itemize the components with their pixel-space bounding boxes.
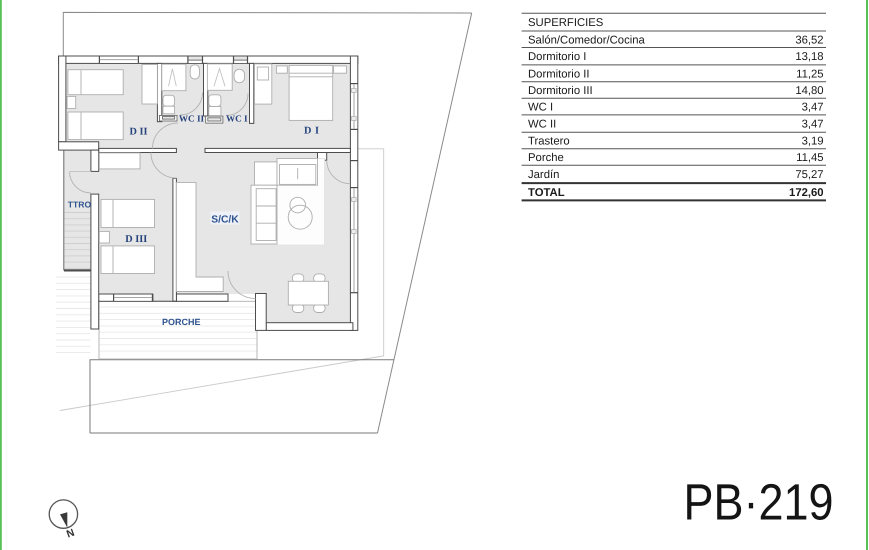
svg-text:Salón/Comedor/Cocina: Salón/Comedor/Cocina [528, 34, 646, 46]
svg-text:3,47: 3,47 [802, 102, 824, 114]
svg-text:13,18: 13,18 [795, 51, 823, 63]
svg-text:75,27: 75,27 [795, 169, 823, 181]
svg-text:11,45: 11,45 [796, 152, 823, 164]
svg-text:N: N [65, 527, 76, 541]
svg-text:11,25: 11,25 [796, 68, 823, 80]
svg-text:Dormitorio II: Dormitorio II [528, 68, 590, 80]
svg-text:SUPERFICIES: SUPERFICIES [528, 17, 604, 29]
svg-text:Dormitorio III: Dormitorio III [528, 85, 593, 97]
svg-text:36,52: 36,52 [795, 34, 823, 46]
svg-text:3,19: 3,19 [802, 136, 824, 148]
svg-text:PB·219: PB·219 [684, 473, 834, 530]
svg-text:Trastero: Trastero [528, 136, 570, 148]
svg-text:3,47: 3,47 [802, 119, 824, 131]
svg-text:Jardín: Jardín [528, 169, 559, 181]
svg-text:Dormitorio I: Dormitorio I [528, 51, 586, 63]
svg-text:WC I: WC I [528, 102, 553, 114]
svg-text:PORCHE: PORCHE [162, 317, 201, 327]
svg-text:172,60: 172,60 [789, 187, 824, 199]
svg-text:D II: D II [129, 126, 147, 137]
svg-text:WC I: WC I [226, 114, 248, 124]
svg-text:D I: D I [304, 125, 320, 136]
svg-text:S/C/K: S/C/K [211, 215, 239, 226]
svg-text:Porche: Porche [528, 152, 564, 164]
svg-text:WC II: WC II [528, 119, 556, 131]
svg-text:D III: D III [125, 234, 147, 245]
svg-text:14,80: 14,80 [795, 85, 823, 97]
svg-text:TTRO: TTRO [68, 200, 92, 210]
svg-text:WC II: WC II [179, 114, 205, 124]
svg-text:TOTAL: TOTAL [528, 187, 565, 199]
